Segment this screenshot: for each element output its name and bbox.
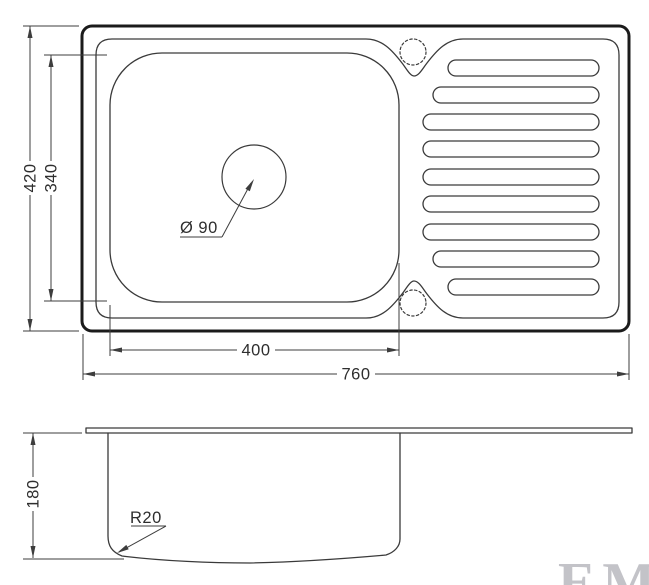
arrow [387,348,399,353]
watermark: EMA [558,552,649,585]
label-drain-diameter: Ø 90 [180,219,218,237]
rib [423,224,599,240]
top-view-outer-body [82,26,629,331]
rim-flange-section [86,428,632,433]
arrow [31,433,36,445]
label-bowl-depth: 340 [43,163,61,192]
drainboard-ribs [423,60,599,295]
arrow [28,26,33,38]
top-view-contours [96,39,619,318]
drawing-canvas: 420 340 400 760 Ø 90 180 R20 EMA [0,0,649,585]
rib [423,114,599,130]
rib [423,196,599,212]
sink-technical-drawing: 420 340 400 760 Ø 90 180 R20 EMA [0,0,649,585]
arrow [83,372,95,377]
drain-hole [222,145,286,209]
label-overall-width: 760 [341,366,370,384]
arrowheads [28,26,630,558]
tap-hole-bottom [400,290,426,316]
rib [433,87,599,103]
label-overall-depth: 420 [22,163,40,192]
tap-hole-top [400,39,426,65]
rib [448,60,599,76]
dimension-labels: 420 340 400 760 Ø 90 180 R20 [22,163,371,527]
label-bowl-width: 400 [241,342,270,360]
rib [423,169,599,185]
rib [448,279,599,295]
label-corner-radius: R20 [130,509,162,527]
label-bowl-height: 180 [25,479,43,508]
arrow [110,348,122,353]
arrow [31,546,36,558]
dimension-lines [23,26,629,559]
arrow [49,55,54,67]
side-view-contours [86,428,632,563]
arrow [49,289,54,301]
watermark-text: EMA [558,552,649,585]
arrow [117,545,129,553]
arrow [245,179,254,191]
arrow [28,319,33,331]
sink-inner-rim [96,39,619,318]
bowl-section [108,433,400,563]
rib [423,141,599,157]
arrow [617,372,629,377]
bowl-outline [110,53,399,302]
rib [433,251,599,267]
sink-outer-edge [82,26,629,331]
